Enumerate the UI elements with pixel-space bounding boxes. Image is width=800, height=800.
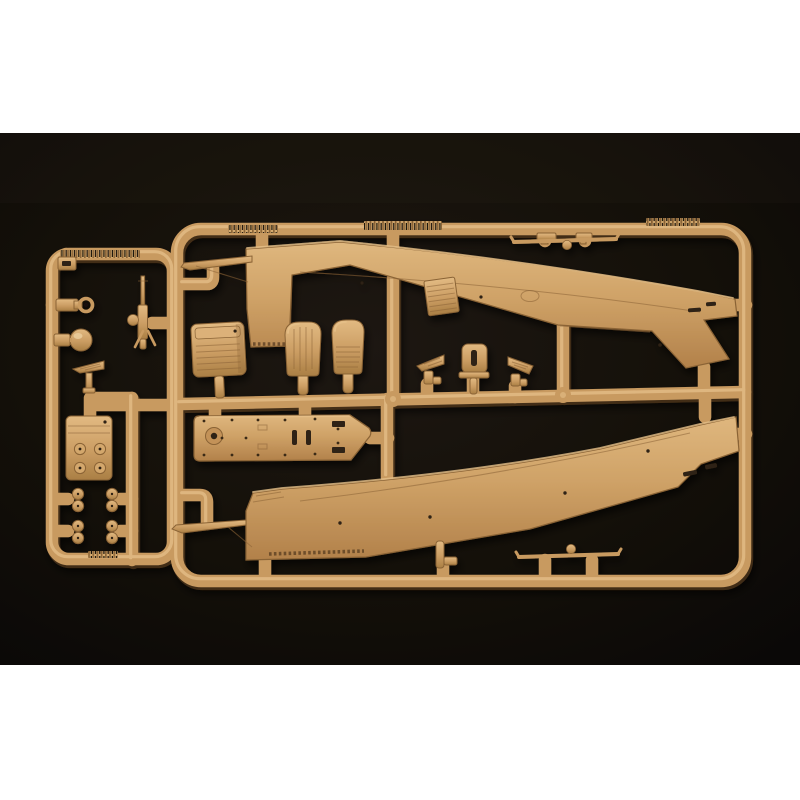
product-photo (0, 133, 800, 665)
stowage-box (66, 416, 112, 480)
louvered-panel (424, 277, 460, 316)
bracket-small (58, 257, 76, 270)
sprue-illustration (0, 133, 800, 665)
light-falloff (0, 133, 800, 203)
cockpit-floor (194, 415, 371, 461)
